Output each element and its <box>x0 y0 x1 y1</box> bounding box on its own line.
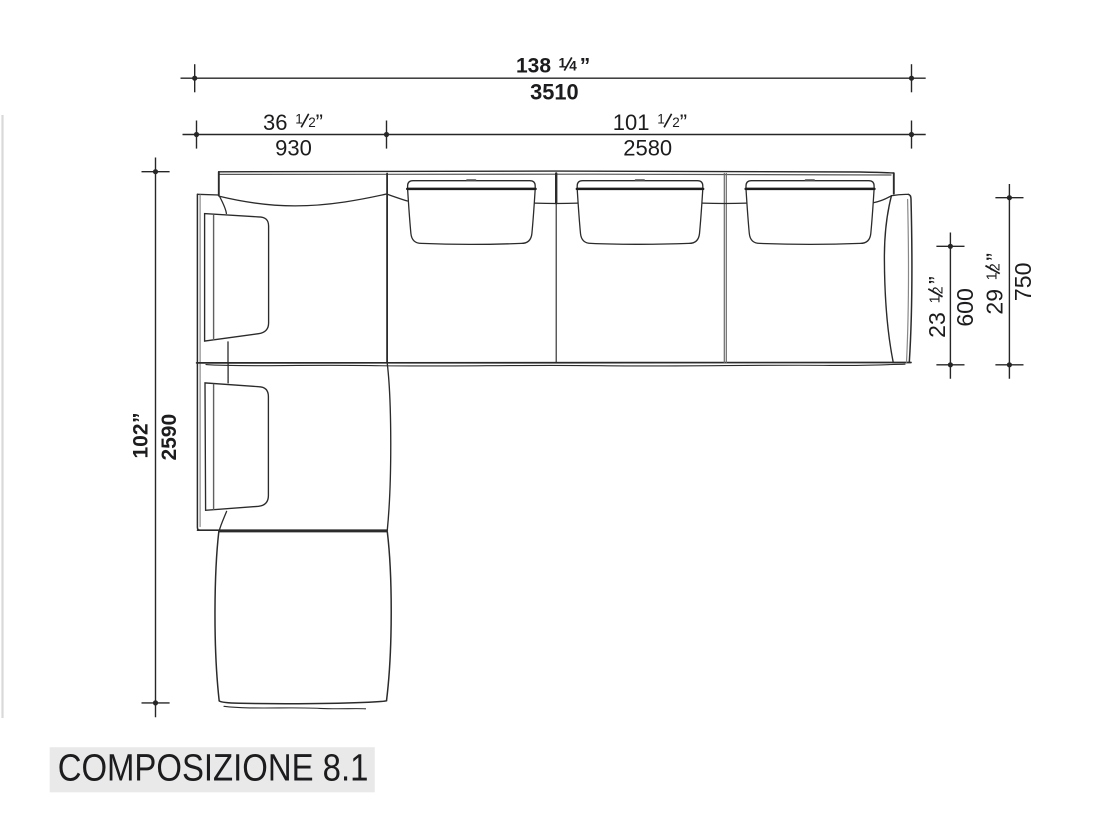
svg-text:930: 930 <box>275 136 312 161</box>
svg-text:2590: 2590 <box>158 414 181 461</box>
svg-text:36: 36 <box>263 110 287 135</box>
svg-text:”: ” <box>981 253 1007 261</box>
svg-text:102: 102 <box>130 423 153 458</box>
svg-text:”: ” <box>316 110 323 135</box>
svg-text:3510: 3510 <box>530 79 579 104</box>
svg-text:”: ” <box>924 276 950 284</box>
svg-text:COMPOSIZIONE 8.1: COMPOSIZIONE 8.1 <box>58 747 369 789</box>
svg-text:”: ” <box>580 54 591 77</box>
svg-text:600: 600 <box>952 288 978 327</box>
svg-text:29: 29 <box>981 289 1007 315</box>
svg-text:2: 2 <box>672 115 680 130</box>
svg-text:101: 101 <box>613 110 650 135</box>
svg-text:”: ” <box>680 110 687 135</box>
svg-text:”: ” <box>130 413 153 424</box>
svg-text:750: 750 <box>1010 263 1036 302</box>
svg-text:1: 1 <box>657 112 665 127</box>
svg-text:2580: 2580 <box>623 136 672 161</box>
svg-text:1: 1 <box>295 112 303 127</box>
svg-text:138: 138 <box>516 54 551 77</box>
svg-text:23: 23 <box>924 312 950 338</box>
